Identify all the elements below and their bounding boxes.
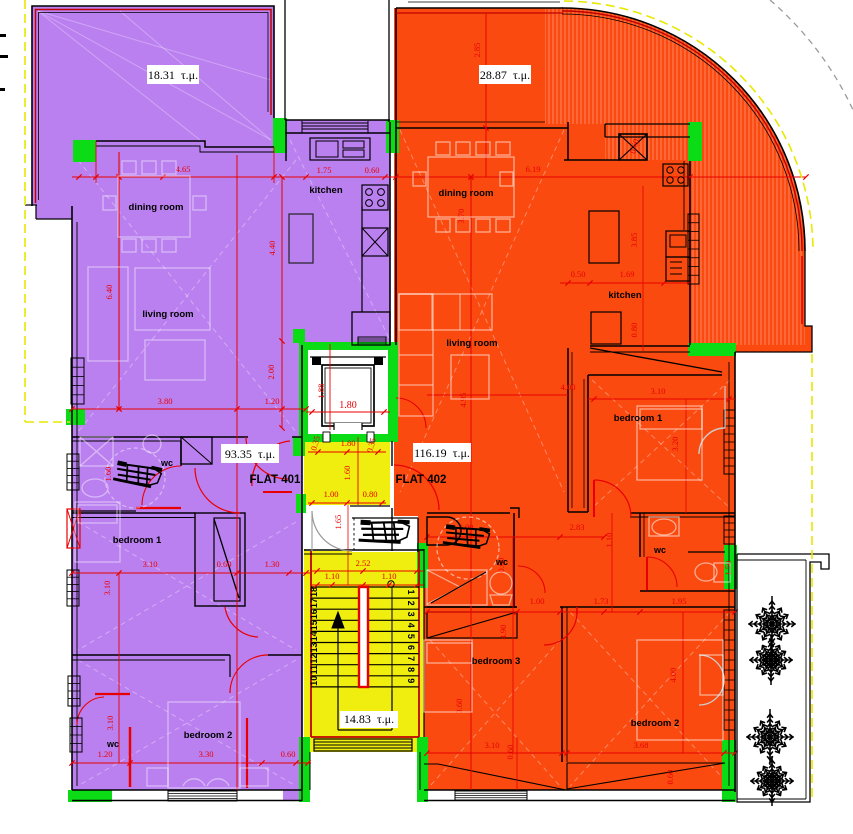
svg-text:0.60: 0.60 xyxy=(217,559,232,569)
svg-text:bedroom 2: bedroom 2 xyxy=(184,730,233,741)
svg-text:0.80: 0.80 xyxy=(363,489,378,499)
svg-text:1.65: 1.65 xyxy=(333,515,343,530)
svg-text:4.65: 4.65 xyxy=(176,164,191,174)
svg-text:1.10: 1.10 xyxy=(604,533,614,548)
svg-text:3.10: 3.10 xyxy=(651,386,666,396)
svg-text:3.80: 3.80 xyxy=(158,396,173,406)
svg-text:1.80: 1.80 xyxy=(341,438,356,448)
svg-text:1.20: 1.20 xyxy=(265,396,280,406)
svg-text:1.73: 1.73 xyxy=(594,596,609,606)
svg-text:18: 18 xyxy=(309,587,319,597)
svg-text:1.30: 1.30 xyxy=(265,559,280,569)
svg-text:3.30: 3.30 xyxy=(199,749,214,759)
svg-text:2.85: 2.85 xyxy=(472,43,482,58)
svg-text:4: 4 xyxy=(406,623,416,628)
svg-text:0.60: 0.60 xyxy=(505,745,515,760)
svg-text:11: 11 xyxy=(309,665,319,675)
svg-text:14.83 τ.μ.: 14.83 τ.μ. xyxy=(344,712,394,726)
svg-text:2.52: 2.52 xyxy=(356,558,371,568)
svg-text:3.68: 3.68 xyxy=(634,740,649,750)
svg-text:wc: wc xyxy=(160,458,173,468)
svg-text:1.88: 1.88 xyxy=(316,384,326,399)
svg-text:18.31 τ.μ.: 18.31 τ.μ. xyxy=(148,68,198,82)
svg-text:10: 10 xyxy=(309,676,319,686)
svg-text:0.60: 0.60 xyxy=(281,749,296,759)
svg-text:6.19: 6.19 xyxy=(526,164,541,174)
svg-text:6.40: 6.40 xyxy=(104,285,114,300)
svg-text:1: 1 xyxy=(406,589,416,594)
svg-text:2.83: 2.83 xyxy=(570,522,585,532)
svg-text:wc: wc xyxy=(495,557,508,567)
svg-text:3.60: 3.60 xyxy=(454,699,464,714)
svg-text:bedroom 2: bedroom 2 xyxy=(631,718,680,729)
svg-text:7: 7 xyxy=(406,656,416,661)
svg-text:0.60: 0.60 xyxy=(665,770,675,785)
svg-text:FLAT 401: FLAT 401 xyxy=(250,474,302,486)
svg-text:15: 15 xyxy=(309,620,319,630)
svg-text:93.35 τ.μ.: 93.35 τ.μ. xyxy=(225,447,275,461)
svg-text:4.40: 4.40 xyxy=(267,241,277,256)
svg-text:1.10: 1.10 xyxy=(325,571,340,581)
svg-text:8: 8 xyxy=(406,667,416,672)
svg-text:dining room: dining room xyxy=(129,202,184,213)
svg-text:bedroom 3: bedroom 3 xyxy=(472,656,521,667)
svg-text:3.10: 3.10 xyxy=(485,740,500,750)
svg-text:kitchen: kitchen xyxy=(608,290,641,301)
svg-text:wc: wc xyxy=(653,545,666,555)
svg-text:3.70: 3.70 xyxy=(456,209,466,224)
svg-text:6: 6 xyxy=(406,645,416,650)
svg-text:3.85: 3.85 xyxy=(629,233,639,248)
svg-text:16: 16 xyxy=(309,609,319,619)
svg-text:0.60: 0.60 xyxy=(365,165,380,175)
svg-text:dining room: dining room xyxy=(439,188,494,199)
svg-text:1.69: 1.69 xyxy=(620,269,635,279)
svg-text:5: 5 xyxy=(406,634,416,639)
svg-text:3.10: 3.10 xyxy=(143,559,158,569)
svg-text:1.20: 1.20 xyxy=(98,749,113,759)
svg-text:4.00: 4.00 xyxy=(561,382,576,392)
svg-text:FLAT 402: FLAT 402 xyxy=(396,474,447,486)
svg-text:28.87 τ.μ.: 28.87 τ.μ. xyxy=(480,68,530,82)
svg-text:0.50: 0.50 xyxy=(571,269,586,279)
svg-text:1.95: 1.95 xyxy=(672,596,687,606)
svg-text:3.20: 3.20 xyxy=(670,437,680,452)
svg-text:4.00: 4.00 xyxy=(668,668,678,683)
svg-text:4.90: 4.90 xyxy=(498,625,508,640)
svg-text:3.10: 3.10 xyxy=(105,716,115,731)
svg-text:1.10: 1.10 xyxy=(382,571,397,581)
svg-text:2: 2 xyxy=(406,601,416,606)
svg-text:116.19 τ.μ.: 116.19 τ.μ. xyxy=(414,446,470,460)
svg-text:1.60: 1.60 xyxy=(342,466,352,481)
svg-text:0.80: 0.80 xyxy=(629,323,639,338)
svg-text:bedroom 1: bedroom 1 xyxy=(113,535,162,546)
svg-text:13: 13 xyxy=(309,642,319,652)
svg-text:kitchen: kitchen xyxy=(309,185,342,196)
svg-text:living room: living room xyxy=(446,338,497,349)
svg-text:3: 3 xyxy=(406,612,416,617)
svg-text:3.10: 3.10 xyxy=(102,581,112,596)
svg-text:1.75: 1.75 xyxy=(317,165,332,175)
svg-text:2.00: 2.00 xyxy=(266,365,276,380)
svg-text:17: 17 xyxy=(309,598,319,608)
svg-text:1.00: 1.00 xyxy=(530,596,545,606)
svg-text:living room: living room xyxy=(142,309,193,320)
svg-text:9: 9 xyxy=(406,678,416,683)
svg-text:1.80: 1.80 xyxy=(339,400,357,411)
svg-text:wc: wc xyxy=(106,739,119,749)
svg-text:bedroom 1: bedroom 1 xyxy=(614,413,663,424)
svg-text:12: 12 xyxy=(309,654,319,664)
svg-text:14: 14 xyxy=(309,631,319,641)
svg-text:1.00: 1.00 xyxy=(324,489,339,499)
